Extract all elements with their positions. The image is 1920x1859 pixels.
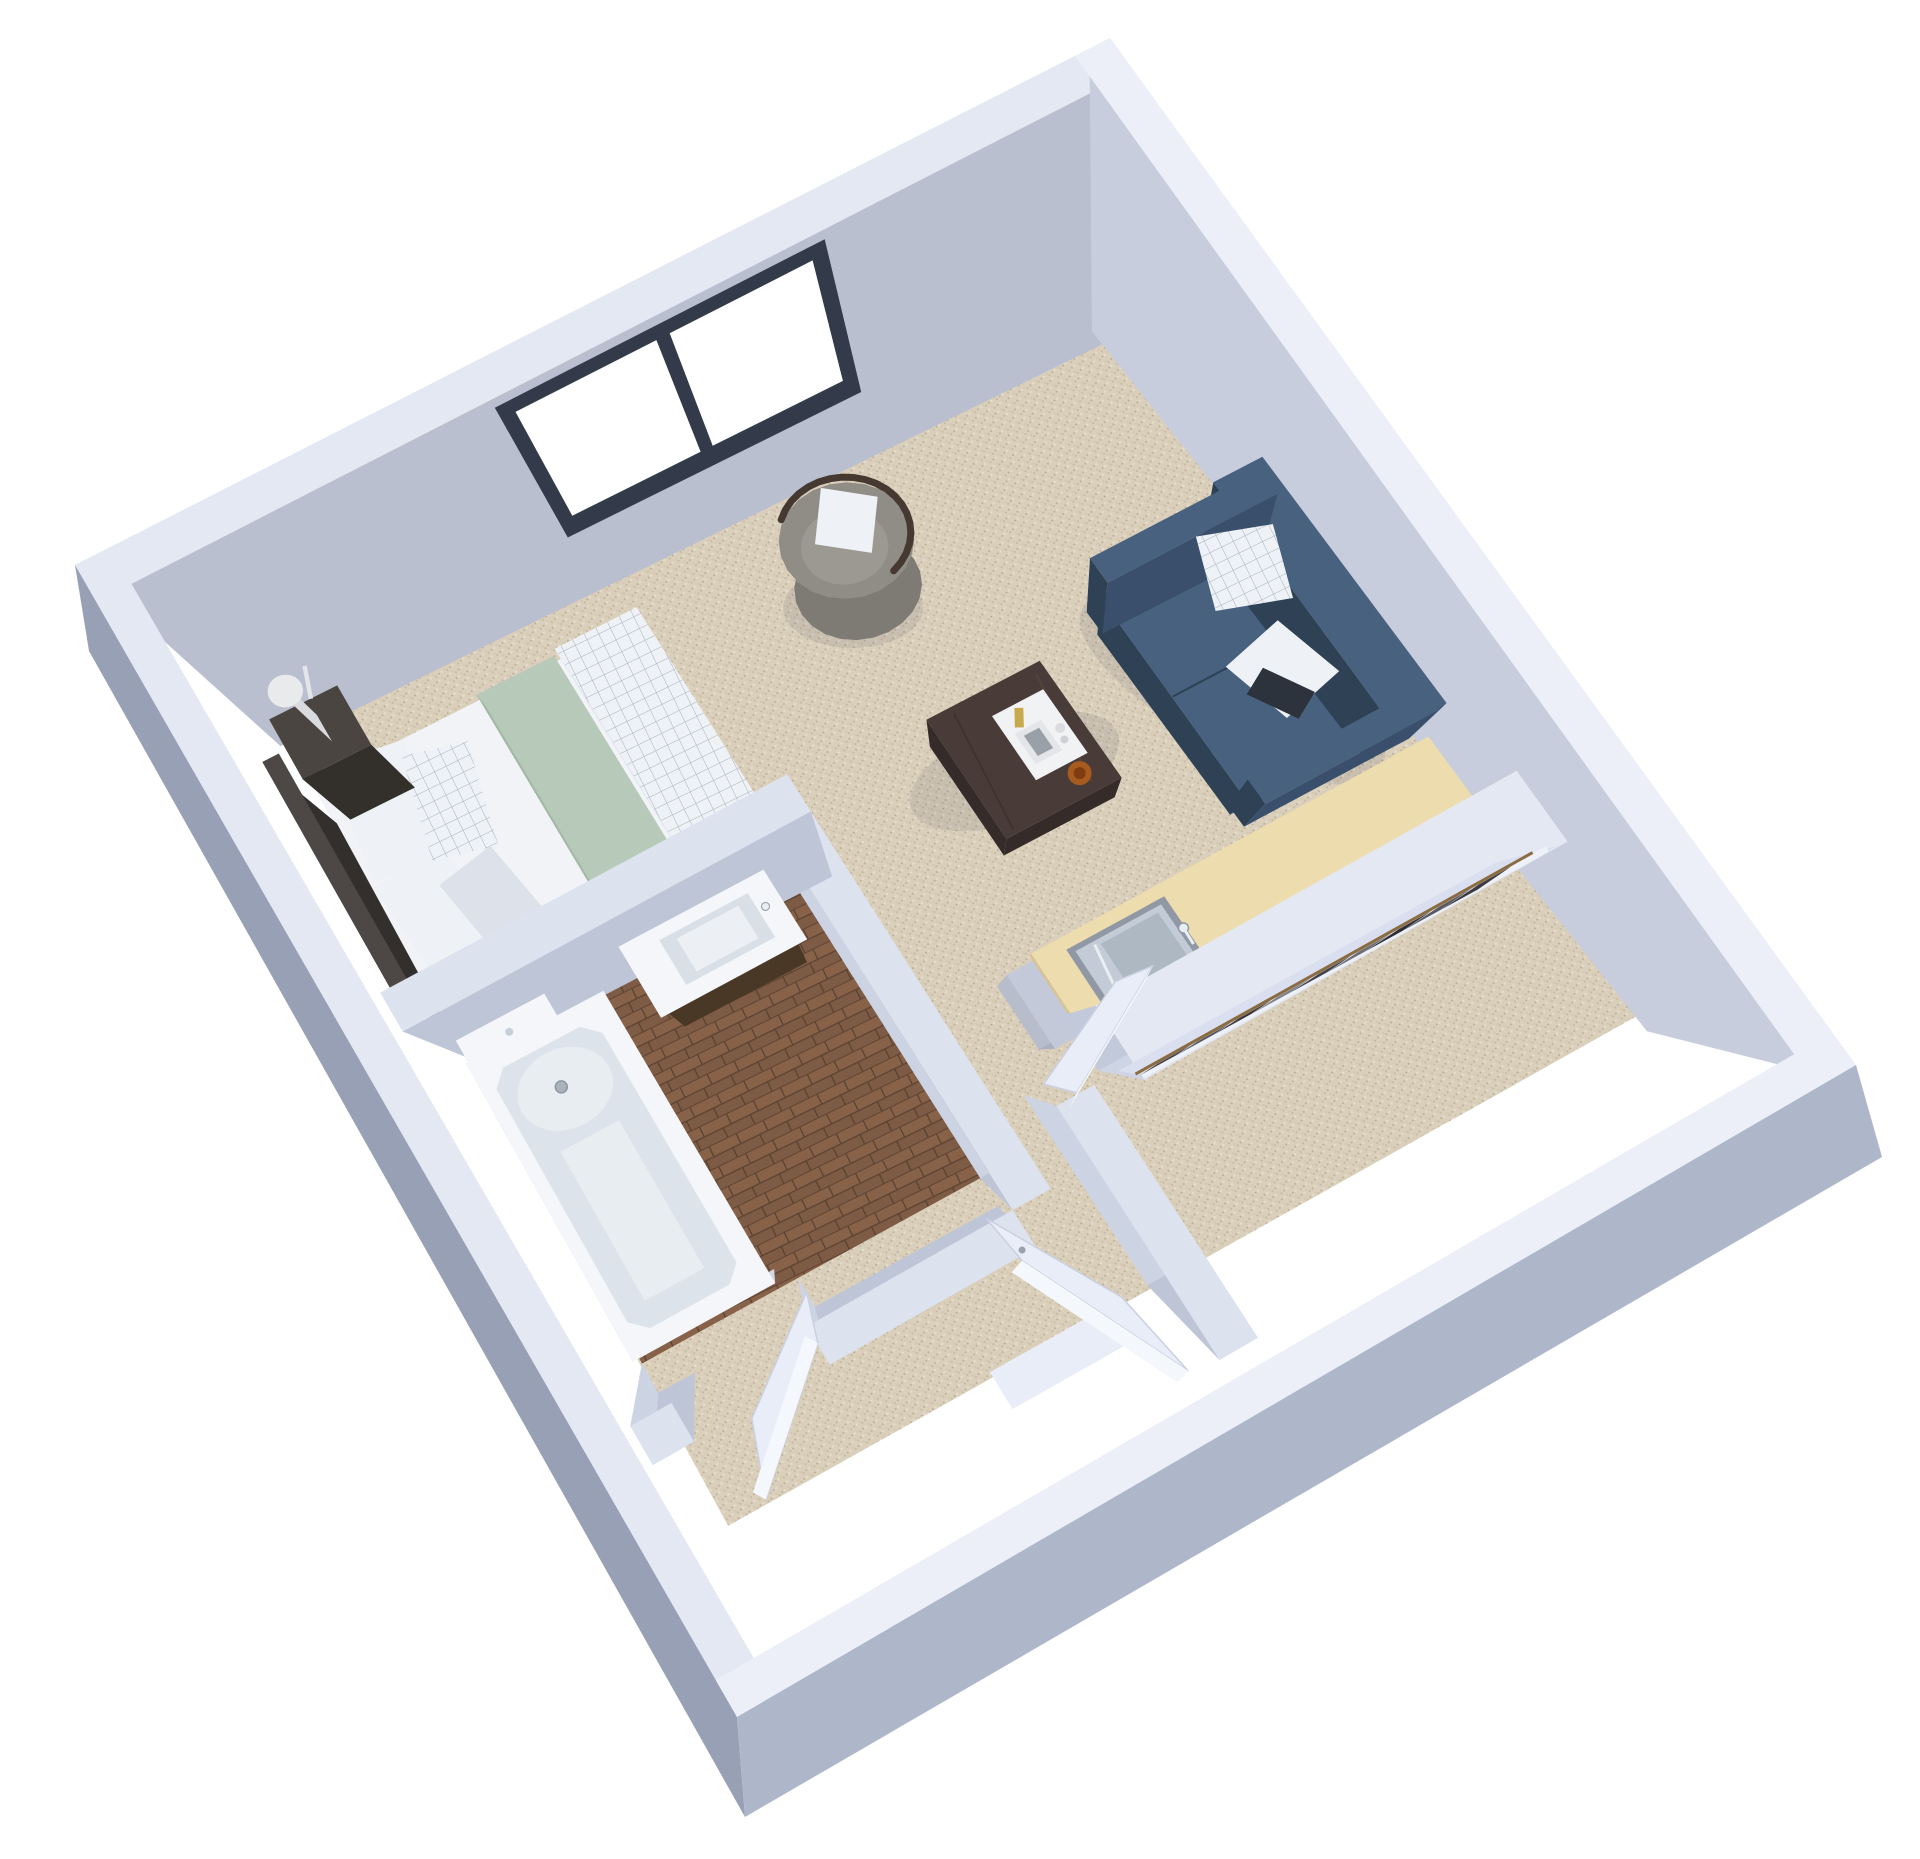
bathtub-drain bbox=[555, 1081, 567, 1093]
tray-candle bbox=[1060, 735, 1068, 743]
entry-door-handle bbox=[1019, 1247, 1026, 1254]
vanity-faucet bbox=[762, 902, 770, 910]
armchair-pillow bbox=[815, 488, 878, 553]
floorplan-scene bbox=[0, 0, 1920, 1859]
tray-gold-leaf bbox=[1014, 708, 1024, 728]
floorplan-render bbox=[0, 0, 1920, 1859]
decor-plate-center bbox=[1074, 767, 1086, 779]
toilet-flush-button bbox=[505, 1028, 513, 1036]
tray-candle bbox=[1055, 723, 1065, 733]
